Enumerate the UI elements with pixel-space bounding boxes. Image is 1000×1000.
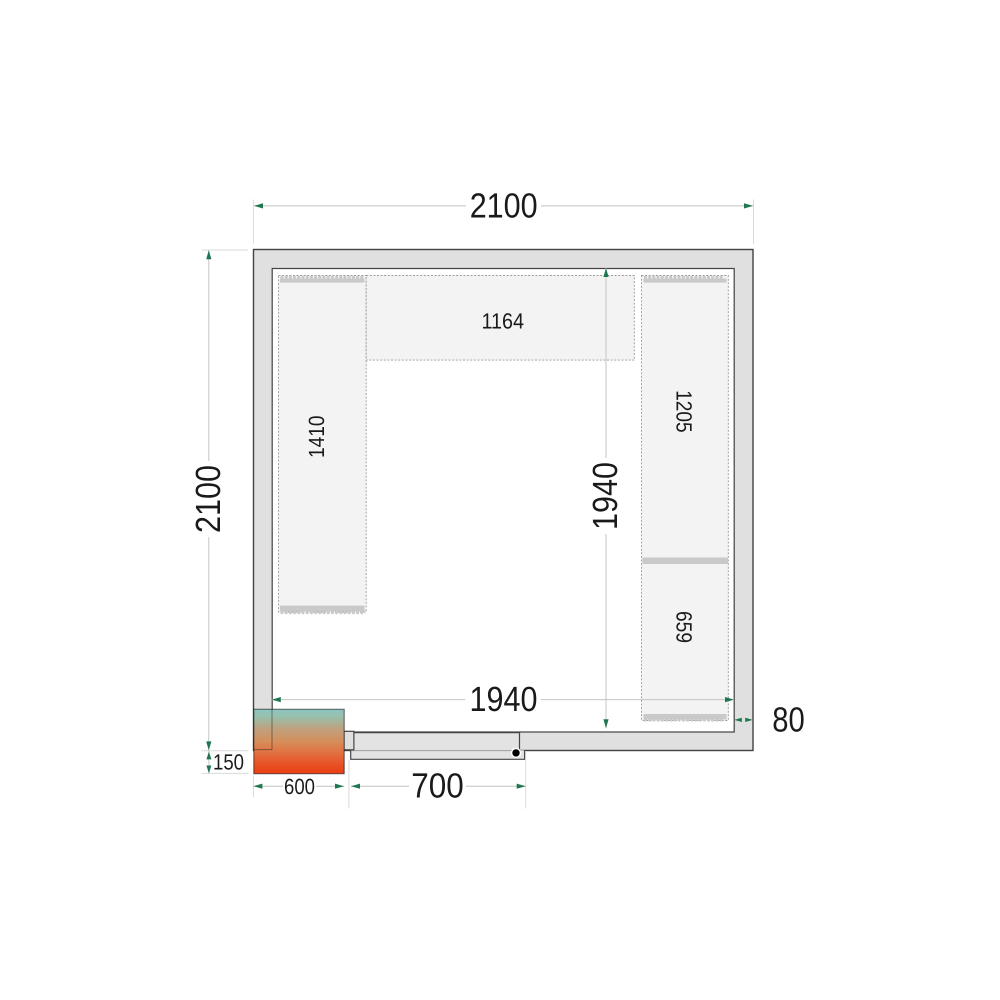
svg-text:2100: 2100	[189, 465, 228, 533]
svg-text:150: 150	[213, 750, 244, 775]
svg-text:700: 700	[411, 767, 464, 806]
svg-text:1940: 1940	[470, 680, 538, 719]
svg-text:80: 80	[772, 700, 805, 739]
svg-text:1410: 1410	[304, 416, 329, 459]
svg-text:600: 600	[284, 774, 315, 799]
svg-text:1940: 1940	[586, 462, 625, 530]
svg-text:2100: 2100	[470, 186, 538, 225]
svg-text:1164: 1164	[481, 309, 524, 334]
svg-text:1205: 1205	[671, 390, 696, 433]
svg-text:659: 659	[672, 611, 697, 643]
